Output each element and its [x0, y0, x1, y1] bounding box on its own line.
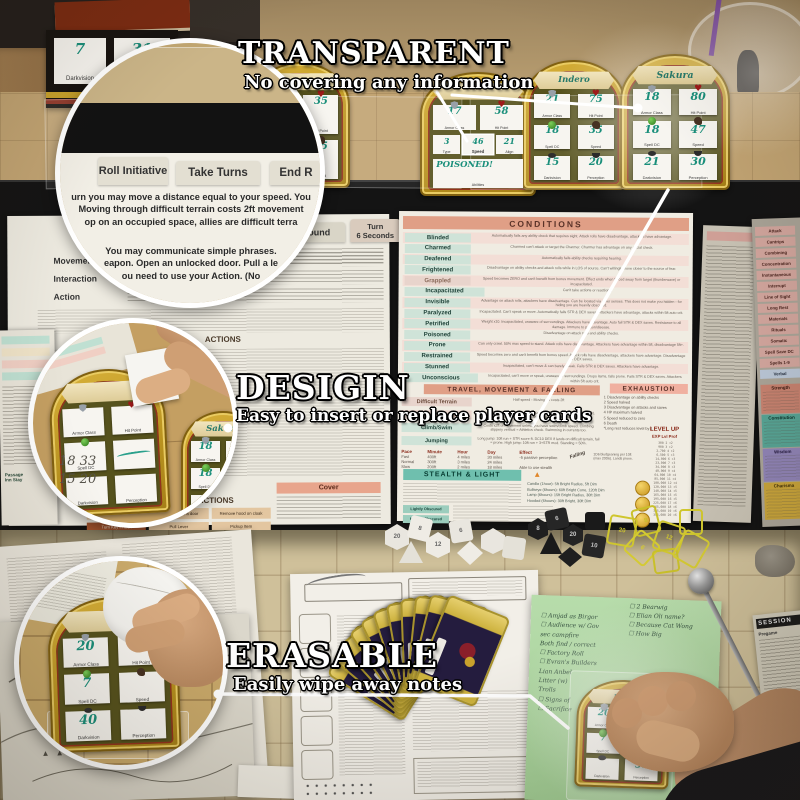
condition-name: Incapacitated	[404, 287, 484, 297]
condition-desc: Automatically fails ability checks requi…	[477, 255, 687, 265]
sleeve	[730, 770, 800, 800]
term-label: Interrupt	[768, 283, 786, 289]
die-value: 12	[435, 542, 442, 548]
stat-cell-abilities: POISONED!Abilities	[433, 159, 523, 188]
condition-name: Paralyzed	[404, 309, 470, 318]
name-banner: Sakura	[190, 421, 238, 438]
stat-cell: 21Darkvision	[191, 495, 220, 517]
price-labels: Passage Inn Stay	[5, 472, 23, 482]
stat-cell: 18Spell DC	[191, 468, 220, 490]
travel-name: Jumping	[401, 436, 471, 445]
term-label: Spell Save DC	[765, 349, 794, 355]
die-value: 6	[555, 516, 560, 523]
spell-term: Concentration	[756, 259, 796, 269]
player-name: Sakura	[656, 70, 693, 81]
ability-block-strength: Strength	[760, 384, 800, 414]
term-label: Attack	[768, 228, 781, 233]
stat-cell: 35Speed	[578, 125, 614, 150]
light-icon	[635, 481, 650, 496]
term-label: Spells 1-9	[770, 360, 790, 366]
column-headers: EXP Lvl Prof	[652, 434, 677, 439]
stat-cell: 21Darkvision	[633, 154, 672, 180]
conditions-header: CONDITIONS	[403, 216, 689, 231]
die-value: 20	[570, 532, 577, 538]
section-title: Cover	[319, 484, 339, 491]
perception-icon	[139, 706, 147, 711]
poisoned-note: POISONED!	[433, 160, 523, 170]
term-label: Concentration	[762, 261, 791, 267]
stat-label: Perception	[116, 497, 157, 504]
condition-name: Petrified	[404, 319, 470, 328]
stat-cell: 40Darkvision	[65, 710, 112, 741]
condition-desc: Speed becomes ZERO and can't benefit fro…	[477, 277, 687, 287]
stat-value: 20	[578, 157, 614, 168]
spell-term: Somatic	[759, 336, 799, 346]
subtitle-text: No covering any information	[244, 72, 533, 93]
condition-desc: Can't take actions or reactions.	[488, 288, 686, 298]
spell-term: Line of Sight	[757, 292, 797, 302]
pencil-notes: 18 33 15 20	[59, 453, 96, 489]
shield-icon	[79, 404, 87, 412]
levelup-header: LEVEL UP	[640, 427, 690, 433]
exhaustion-header: EXHAUSTION	[610, 383, 688, 394]
stat-label: Spell DC	[633, 142, 672, 147]
die-black: 10	[581, 533, 606, 558]
stat-cells: 18Armor Class ♥80Hit Point 18Spell DC 47…	[633, 89, 718, 180]
stat-label: Darkvision	[67, 499, 108, 506]
condition-desc: Incapacitated. Can't speak or move. Auto…	[476, 309, 686, 319]
stat-label: Armor Class	[633, 110, 672, 115]
die-value: 8	[536, 526, 539, 532]
condition-name: Deafened	[405, 255, 471, 264]
light-sources: Candle (1hour): 5ft Bright Radius, 5ft D…	[527, 482, 629, 505]
falling-note: 1D6 bludgeoning per 10ft (max 20D6). Lan…	[593, 452, 637, 461]
die-value: 10	[590, 542, 598, 549]
stat-cell: 15Darkvision	[534, 156, 570, 181]
section-title: TRAVEL, MOVEMENT & FALLING	[447, 386, 576, 394]
ability-block-constitution: Constitution	[761, 414, 800, 448]
stat-label: Armor Class	[63, 661, 109, 668]
stat-cell: ♥75Hit Point	[578, 94, 614, 119]
stat-label: Darkvision	[191, 512, 220, 516]
stat-cell: Speed	[119, 672, 166, 703]
ability-label: Charisma	[774, 483, 795, 489]
stat-label: Type	[433, 150, 460, 154]
obscured-pill-light: Lightly Obscured	[403, 505, 449, 513]
die-value: 6	[639, 545, 645, 552]
stat-value: 15	[534, 157, 570, 168]
condition-name: Poisoned	[404, 330, 470, 339]
stat-label: Perception	[578, 176, 614, 180]
stat-value: 3	[433, 136, 460, 146]
stat-box	[301, 749, 334, 780]
stone-die	[755, 545, 795, 577]
subtitle-text: Easy to insert or replace player cards	[236, 406, 592, 426]
scribble	[117, 449, 152, 459]
term-label: Rituals	[771, 327, 785, 332]
stat-cell: 7Spell DC	[64, 674, 111, 705]
stat-cell-armor: 17Armor Class	[433, 105, 476, 130]
sheet-header	[707, 231, 755, 242]
section-title: EXHAUSTION	[623, 385, 676, 392]
ability-text	[764, 421, 800, 446]
condition-name: Prone	[404, 341, 470, 350]
title-text: ERASABLE	[226, 636, 438, 675]
condition-desc: Disadvantage on ability checks and attac…	[477, 266, 687, 276]
ability-label: Strength	[771, 385, 790, 391]
die-value: 12	[665, 534, 673, 542]
ability-text	[765, 455, 800, 480]
warning-triangle-icon: ▲	[533, 470, 541, 479]
travel-header: TRAVEL, MOVEMENT & FALLING	[424, 384, 600, 395]
stat-cells: 21Armor Class ♥75Hit Point 18Spell DC 35…	[534, 94, 614, 181]
stat-value: 46	[463, 136, 492, 146]
player-name: Indero	[558, 75, 590, 85]
speed-icon	[592, 121, 600, 129]
travel-row: JumpingLong jump: 10ft run + STR score f…	[401, 435, 601, 449]
section-title: LEVEL UP	[650, 427, 679, 433]
stat-cell: 47Speed	[679, 121, 718, 147]
term-label: Combining	[765, 250, 788, 256]
stat-value: 30	[679, 155, 718, 168]
spell-term: Long Rest	[758, 303, 798, 313]
die-value: 8	[418, 525, 423, 532]
name-banner: Indero	[533, 71, 615, 90]
button-label: Pull Lever	[169, 524, 188, 529]
stat-label: Darkvision	[534, 176, 570, 180]
session-label: Pregame	[758, 630, 777, 637]
spell-term: Combining	[756, 248, 796, 258]
magnified-text: urn you may move a distance equal to you…	[71, 192, 311, 227]
tab-label: Roll Initiative	[99, 165, 167, 177]
spell-term: Interrupt	[757, 281, 797, 291]
falling-desc: 1D6 bludgeoning per 10ft (max 20D6). Lan…	[593, 452, 632, 461]
term-label: Materials	[769, 316, 788, 322]
spell-orb-icon	[202, 464, 210, 472]
session-header: SESSION	[756, 613, 800, 629]
stat-value: 40	[65, 712, 111, 729]
die-white: 6	[448, 518, 473, 543]
holder-partial-zoom: Sakura 18Armor Class ♥ 18Spell DC 21Dark…	[181, 411, 238, 525]
conditions-sheet: CONDITIONS BlindedAutomatically fails an…	[397, 211, 693, 523]
hand-knuckle	[638, 686, 668, 716]
pace-cell: Able to use stealth	[519, 465, 599, 471]
stat-cell: Perception	[115, 474, 157, 504]
button-label: Pickup Item	[230, 524, 252, 529]
equipment-box	[413, 756, 534, 794]
die-value: 6	[459, 528, 463, 534]
stat-label: Align	[496, 150, 523, 154]
tab-label: Take Turns	[188, 167, 248, 179]
stat-cell: Armor Class	[62, 407, 104, 437]
stat-cell: 18Spell DC	[633, 121, 672, 147]
stat-label: Armor Class	[64, 429, 105, 436]
die-yellow	[679, 509, 703, 535]
stat-label: Hit Point	[578, 114, 614, 118]
condition-desc: Disadvantage on attack rolls and ability…	[476, 331, 686, 341]
subtitle-text: Easily wipe away notes	[233, 674, 462, 695]
spell-term: Instantaneous	[756, 270, 796, 280]
condition-desc: Speed becomes zero and can't benefit fro…	[476, 352, 686, 362]
rules-zoom-text-1: urn you may move a distance equal to you…	[68, 191, 314, 228]
die-value: 20	[618, 527, 626, 534]
ability-label: Constitution	[768, 415, 795, 421]
stat-cell: Perception	[120, 709, 167, 740]
condition-desc: Incapacitated, can't move & can barely s…	[476, 363, 686, 373]
travel-desc: Long jump: 10ft run + STR score ft. DC10…	[477, 437, 599, 449]
section-title: CONDITIONS	[509, 218, 582, 229]
stat-cell-speed: 46Speed	[463, 135, 492, 154]
sheet-text	[697, 245, 754, 507]
stat-cell: ♥80Hit Point	[679, 89, 718, 115]
stat-cell: 18Armor Class	[191, 441, 220, 463]
condition-name: Charmed	[405, 244, 471, 253]
stat-cell-hit: ♥58Hit Point	[480, 105, 523, 130]
condition-desc: Advantage on attack rolls, attackers hav…	[476, 298, 686, 308]
die-value: 8	[644, 518, 649, 525]
player-card-holder-indero: Indero 21Armor Class ♥75Hit Point 18Spel…	[522, 60, 626, 190]
stat-label: Perception	[121, 733, 167, 740]
stat-cell: ♥Hit Point	[111, 404, 153, 434]
tab-end-round-zoom: End R	[270, 161, 322, 185]
handwritten-numbers: 18 33 15 20	[59, 454, 96, 487]
darkvision-icon	[648, 151, 656, 156]
darkvision-icon	[548, 153, 556, 158]
title-text: TRANSPARENT	[238, 36, 510, 71]
condition-desc: Can only crawl. 50% max speed to stand. …	[476, 341, 686, 351]
annotation-title-design: DESIGIN	[236, 368, 410, 407]
annotation-title-transparent: TRANSPARENT	[238, 36, 510, 71]
spell-term: Materials	[758, 314, 798, 324]
ability-text	[766, 489, 800, 518]
cover-header: Cover	[277, 482, 381, 494]
stat-label: Darkvision	[633, 175, 672, 180]
tab-turn-seconds: Turn 6 Seconds	[350, 219, 400, 242]
screen-edge-zoom	[60, 103, 320, 153]
condition-name: Invisible	[404, 298, 470, 307]
name-banner: Sakura	[632, 65, 719, 85]
condition-name: Grappled	[405, 276, 471, 285]
stealth-text	[403, 483, 521, 504]
die-black	[585, 512, 605, 530]
die-white	[502, 536, 527, 561]
annotation-sub-design: Easy to insert or replace player cards	[236, 406, 592, 426]
player-card-holder-sakura: Sakura 18Armor Class ♥80Hit Point 18Spel…	[620, 54, 730, 190]
stat-label: Hit Point	[480, 126, 523, 130]
spell-panel: Attack Cantrips Combining Concentration …	[752, 217, 800, 527]
stat-label: Darkvision	[66, 735, 112, 742]
levelup-rows: 300 2 +2 900 3 +2 2,700 4 +2 6,500 5 +3 …	[653, 441, 677, 517]
annotation-title-erasable: ERASABLE	[226, 636, 438, 675]
heart-icon: ♥	[592, 90, 600, 98]
spell-orb-icon	[80, 439, 88, 447]
condition-name: Blinded	[405, 233, 471, 242]
session-title: SESSION	[758, 617, 792, 626]
spell-orb-icon	[548, 121, 556, 129]
stat-cell: 21Armor Class	[534, 94, 570, 119]
condition-name: Stunned	[404, 363, 470, 372]
light-labels: Candle (1hour): 5ft Bright Radius, 5ft D…	[527, 482, 605, 504]
red-book	[55, 0, 191, 32]
magnified-text: You may communicate simple phrases. eapo…	[104, 246, 278, 281]
stat-label: Armor Class	[191, 458, 220, 462]
tab-take-turns-zoom: Take Turns	[176, 161, 260, 185]
stat-cell: 20Armor Class	[62, 637, 109, 668]
ability-block-wisdom: Wisdom	[763, 448, 800, 482]
spell-term: Verbal	[760, 369, 800, 379]
stealth-header: STEALTH & LIGHT	[403, 469, 521, 481]
spell-term: Attack	[755, 226, 795, 236]
condition-desc: Weight x10. Incapacitated, unaware of su…	[476, 320, 686, 330]
dot-grid	[304, 781, 376, 798]
price-label: Passage Inn Stay	[5, 472, 23, 482]
stat-label: Abilities	[433, 183, 523, 187]
stat-cell-align: 21Align	[496, 135, 523, 154]
obscured-label: Lightly Obscured	[410, 507, 441, 511]
session-subtitle: Pregame	[758, 630, 777, 637]
stat-label: Hit Point	[112, 427, 153, 434]
stat-cell: 30Perception	[679, 154, 718, 180]
stat-label: Speed	[578, 145, 614, 149]
conditions-rows: BlindedAutomatically fails any ability c…	[402, 232, 689, 385]
condition-name: Unconscious	[404, 373, 478, 383]
right-sheet	[693, 225, 761, 523]
condition-name: Restrained	[404, 352, 470, 361]
zoom-circle-erasable: 20Armor Class ♥Hit Point 7Spell DC Speed…	[14, 556, 228, 770]
stat-cell	[113, 439, 155, 469]
tab-roll-initiative-zoom: Roll Initiative	[98, 157, 168, 185]
annotation-sub-erasable: Easily wipe away notes	[233, 674, 462, 695]
condition-desc: Charmed can't attack or target the Charm…	[477, 244, 687, 254]
stat-cell: 20Perception	[578, 156, 614, 181]
stat-cell: 18Armor Class	[633, 89, 672, 115]
stat-label: Armor Class	[534, 114, 570, 118]
triangle-glyph: ▲	[533, 470, 541, 479]
stat-label: Perception	[679, 175, 718, 180]
player-name: Sakura	[206, 424, 238, 434]
stat-label: Spell DC	[191, 485, 220, 489]
term-label: Line of Sight	[764, 294, 790, 300]
stat-label: Hit Point	[679, 110, 718, 115]
speed-icon	[694, 117, 702, 125]
section-title: STEALTH & LIGHT	[424, 471, 501, 479]
ability-label: Wisdom	[774, 449, 792, 455]
mace-pen-head	[688, 568, 714, 594]
term-label: Instantaneous	[762, 272, 791, 278]
stat-value: 21	[496, 136, 523, 146]
die-value: 20	[394, 534, 401, 540]
equipment-text	[417, 760, 529, 788]
zoom-circle-design: Armor Class ♥Hit Point Spell DC Darkvisi…	[28, 318, 238, 528]
heart-icon: ♥	[497, 101, 505, 109]
heart-icon: ♥	[694, 85, 702, 93]
stat-label: Speed	[119, 696, 165, 703]
tab-label: End R	[279, 167, 312, 179]
stat-label: Spell DC	[64, 698, 110, 705]
cover-table	[277, 496, 381, 519]
term-label: Long Rest	[767, 305, 788, 311]
stat-cell: 18Spell DC	[534, 125, 570, 150]
ability-block-charisma: Charisma	[764, 481, 800, 519]
spell-term: Spells 1-9	[760, 358, 800, 368]
stat-cells: 18Armor Class ♥ 18Spell DC 21Darkvision	[191, 441, 238, 517]
annotation-sub-transparent: No covering any information	[244, 72, 533, 93]
stat-cell-type: 3Type	[433, 135, 460, 154]
stat-label: Spell DC	[534, 145, 570, 149]
spell-term: Rituals	[758, 325, 798, 335]
exhaustion-items: 1 Disadvantage on ability checks 2 Speed…	[604, 395, 667, 430]
stat-value: 21	[633, 155, 672, 168]
tab-label: Turn 6 Seconds	[356, 221, 394, 239]
term-label: Somatic	[770, 338, 787, 344]
condition-desc: Automatically fails any ability check th…	[477, 234, 687, 244]
product-photo: Take Turns End Round Turn 6 Seconds Move…	[0, 0, 800, 800]
stat-label: Armor Class	[433, 126, 476, 130]
stat-label: Speed	[679, 142, 718, 147]
rules-zoom-text-2: You may communicate simple phrases. eapo…	[68, 245, 314, 282]
title-text: DESIGIN	[236, 368, 410, 407]
term-label: Verbal	[774, 371, 787, 376]
ability-text	[763, 391, 800, 412]
term-label: Cantrips	[767, 239, 785, 245]
spell-term: Cantrips	[755, 237, 795, 247]
stat-value: 21	[191, 496, 220, 507]
speed-icon	[137, 668, 145, 676]
levelup-cols: EXP Lvl Prof	[640, 434, 690, 439]
spell-orb-icon	[648, 117, 656, 125]
spell-term: Spell Save DC	[759, 347, 799, 357]
condition-name: Frightened	[405, 265, 471, 274]
stat-label: Speed	[463, 149, 492, 154]
hand-knuckle	[666, 681, 696, 711]
